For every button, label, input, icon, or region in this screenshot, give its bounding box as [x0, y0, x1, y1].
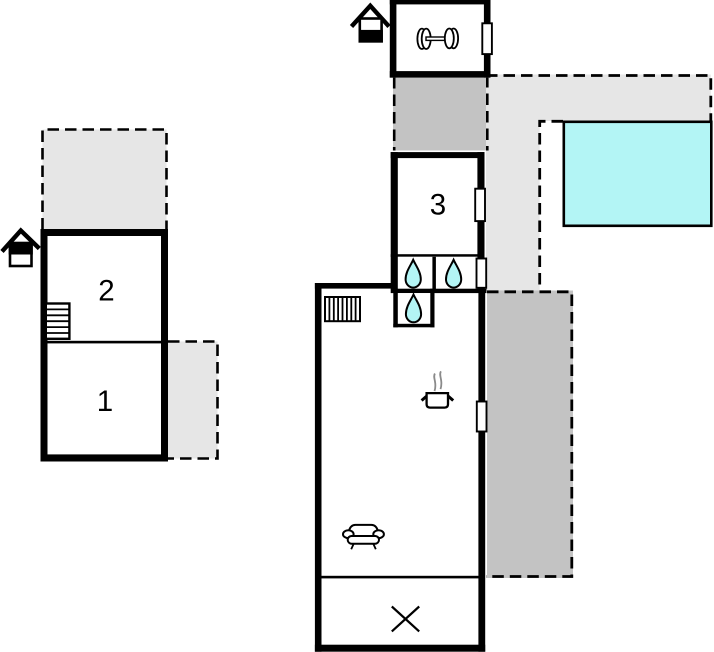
- svg-text:1: 1: [97, 385, 113, 418]
- svg-text:3: 3: [430, 189, 446, 222]
- svg-text:2: 2: [98, 275, 114, 308]
